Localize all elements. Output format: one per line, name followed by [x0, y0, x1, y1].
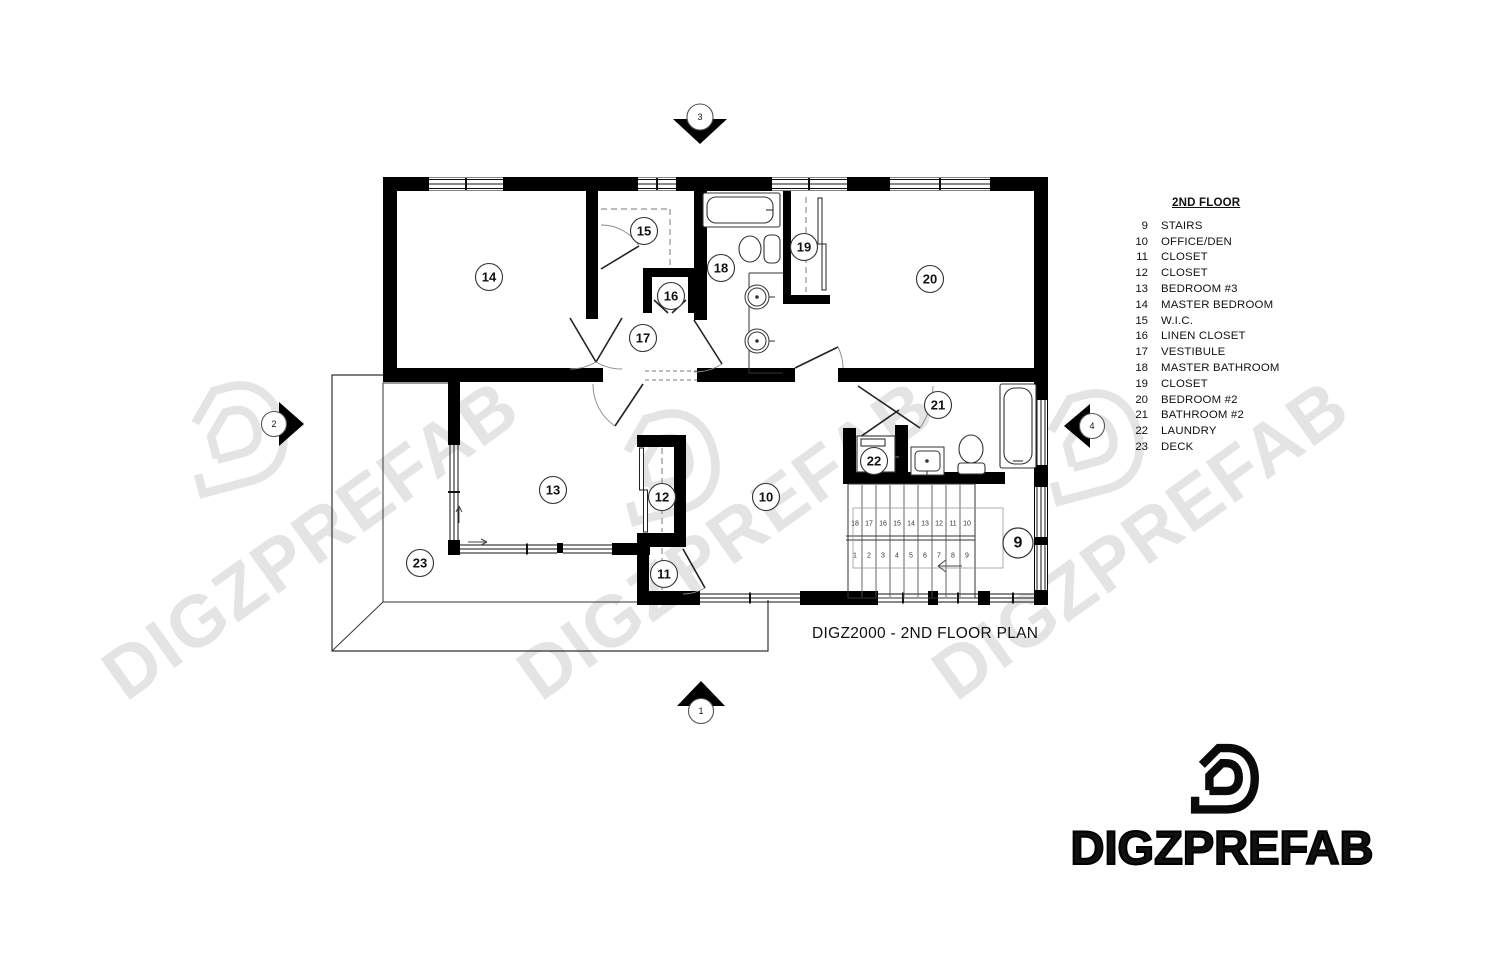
wall-segment: [1034, 177, 1048, 382]
door-swing-arc: [596, 362, 622, 369]
room-number: 12: [655, 490, 669, 505]
tread-number: 10: [963, 521, 971, 528]
legend-item-label: BATHROOM #2: [1161, 409, 1244, 421]
wall-segment: [838, 368, 1048, 382]
stair-landing-break: [846, 536, 975, 540]
room-label-21: 21: [925, 392, 952, 419]
legend-item-label: CLOSET: [1161, 251, 1208, 263]
door-leaf: [795, 347, 838, 368]
window: [563, 545, 612, 553]
wall-segment: [674, 447, 686, 533]
section-marker-number: 3: [697, 112, 702, 122]
window: [429, 178, 503, 191]
window: [1035, 487, 1047, 537]
room-number: 16: [664, 289, 678, 304]
stair-walkline-box: [853, 508, 1003, 568]
arrow-right-icon: [468, 539, 487, 545]
legend-item-label: W.I.C.: [1161, 315, 1193, 327]
room-label-16: 16: [658, 283, 685, 310]
toilet: [739, 235, 780, 263]
double-sink-vanity: [745, 273, 783, 373]
legend-item-label: LAUNDRY: [1161, 425, 1217, 437]
legend-item-number: 19: [1128, 378, 1148, 390]
stair-outline: [848, 484, 975, 598]
legend-item: 22LAUNDRY: [1128, 423, 1368, 439]
patio-slider: [700, 593, 800, 604]
room-label-10: 10: [753, 484, 780, 511]
room-number: 22: [867, 454, 881, 469]
door-swing-arc: [838, 347, 843, 368]
legend-item: 20BEDROOM #2: [1128, 392, 1368, 408]
room-number: 13: [546, 483, 560, 498]
wall-segment: [448, 382, 460, 445]
room-label-19: 19: [791, 234, 818, 261]
drawing-title: DIGZ2000 - 2ND FLOOR PLAN: [812, 625, 1038, 643]
legend-item: 23DECK: [1128, 439, 1368, 455]
legend-item: 14MASTER BEDROOM: [1128, 297, 1368, 313]
window: [638, 178, 676, 191]
legend-item: 11CLOSET: [1128, 250, 1368, 266]
legend-item-number: 14: [1128, 299, 1148, 311]
legend-item-label: LINEN CLOSET: [1161, 330, 1246, 342]
legend-item-number: 20: [1128, 394, 1148, 406]
tread-number: 2: [867, 553, 871, 560]
window: [1035, 545, 1047, 590]
tread-number: 14: [907, 521, 915, 528]
door-swing-arc: [593, 384, 615, 426]
legend-item-number: 22: [1128, 425, 1148, 437]
room-label-23: 23: [407, 550, 434, 577]
legend-item: 16LINEN CLOSET: [1128, 329, 1368, 345]
tread-number: 7: [937, 553, 941, 560]
wall-segment: [783, 191, 791, 303]
legend-item-label: CLOSET: [1161, 378, 1208, 390]
window: [460, 544, 557, 555]
room-number: 18: [714, 261, 728, 276]
tread-number: 13: [921, 521, 929, 528]
tread-number: 5: [909, 553, 913, 560]
legend-item-number: 9: [1128, 220, 1148, 232]
legend-item-number: 13: [1128, 283, 1148, 295]
sliding-door-panel: [640, 448, 644, 490]
legend-title: 2ND FLOOR: [1172, 197, 1368, 209]
tread-number: 16: [879, 521, 887, 528]
legend-item-number: 23: [1128, 441, 1148, 453]
wall-segment: [895, 425, 908, 475]
section-marker-number: 4: [1089, 421, 1094, 431]
cased-opening-dashed: [645, 371, 697, 380]
legend-item-number: 15: [1128, 315, 1148, 327]
legend-item-label: MASTER BATHROOM: [1161, 362, 1280, 374]
section-marker-bottom: 1: [677, 681, 725, 724]
sink: [911, 447, 944, 476]
door-leaf: [694, 320, 722, 364]
window: [772, 178, 847, 191]
legend-item-number: 11: [1128, 251, 1148, 263]
stair-tread-numbers-lower: 1 2 3 4 5 6 7 8 9: [853, 553, 969, 560]
bathtub: [1000, 384, 1036, 468]
wall-segment: [643, 277, 652, 313]
legend-item: 9STAIRS: [1128, 218, 1368, 234]
door-leaf: [570, 318, 596, 362]
wall-segment: [1037, 591, 1048, 605]
door-swing-arc: [570, 362, 596, 369]
room-label-15: 15: [631, 218, 658, 245]
tread-number: 6: [923, 553, 927, 560]
tread-number: 9: [965, 553, 969, 560]
legend-item-number: 10: [1128, 236, 1148, 248]
wall-segment: [697, 368, 795, 382]
stair-tread-numbers-upper: 18 17 16 15 14 13 12 11 10: [851, 521, 971, 528]
room-label-13: 13: [540, 477, 567, 504]
tread-number: 8: [951, 553, 955, 560]
wall-segment: [843, 428, 856, 472]
legend-item: 18MASTER BATHROOM: [1128, 360, 1368, 376]
room-number: 9: [1014, 535, 1023, 552]
legend-item-number: 18: [1128, 362, 1148, 374]
tread-number: 17: [865, 521, 873, 528]
tread-number: 12: [935, 521, 943, 528]
door-leaf: [601, 246, 639, 269]
wall-segment: [586, 191, 598, 319]
window: [990, 593, 1037, 604]
wall-segment: [637, 533, 686, 547]
legend-item: 19CLOSET: [1128, 376, 1368, 392]
room-label-14: 14: [476, 264, 503, 291]
legend-item: 12CLOSET: [1128, 265, 1368, 281]
room-number: 15: [637, 224, 651, 239]
sliding-door-panel: [822, 244, 826, 290]
legend-item-number: 12: [1128, 267, 1148, 279]
wall-segment: [978, 591, 990, 605]
room-number: 14: [482, 270, 497, 285]
tread-number: 11: [949, 521, 956, 528]
tread-number: 1: [853, 553, 857, 560]
bathtub: [703, 193, 780, 227]
legend: 2ND FLOOR 9STAIRS 10OFFICE/DEN 11CLOSET …: [1128, 197, 1368, 455]
deck-corner-miter: [332, 602, 383, 651]
room-number: 19: [797, 240, 811, 255]
section-marker-number: 1: [698, 706, 703, 716]
legend-item-label: VESTIBULE: [1161, 346, 1225, 358]
room-label-20: 20: [917, 266, 944, 293]
room-label-9: 9: [1003, 528, 1033, 558]
wall-segment: [637, 547, 649, 591]
legend-item-number: 21: [1128, 409, 1148, 421]
legend-item: 13BEDROOM #3: [1128, 281, 1368, 297]
section-marker-top: 3: [673, 104, 727, 144]
watermark-text: DIGZPREFAB: [88, 364, 534, 715]
stair-treads: [862, 485, 960, 597]
legend-item: 17VESTIBULE: [1128, 344, 1368, 360]
legend-item-number: 17: [1128, 346, 1148, 358]
legend-item-label: OFFICE/DEN: [1161, 236, 1232, 248]
room-label-22: 22: [861, 448, 888, 475]
legend-item-label: DECK: [1161, 441, 1193, 453]
company-logo-icon: [1195, 748, 1255, 809]
section-marker-left: 2: [262, 402, 305, 446]
room-number: 21: [931, 398, 945, 413]
drawing-sheet: DIGZPREFAB DIGZPREFAB DIGZPREFAB: [0, 0, 1500, 971]
legend-item-label: BEDROOM #2: [1161, 394, 1238, 406]
room-number: 20: [923, 272, 937, 287]
tread-number: 4: [895, 553, 899, 560]
door-leaf: [596, 318, 622, 362]
room-number: 17: [636, 331, 650, 346]
wall-segment: [643, 268, 697, 277]
room-label-18: 18: [708, 255, 735, 282]
room-number: 23: [413, 556, 427, 571]
room-label-17: 17: [630, 325, 657, 352]
room-number: 10: [759, 490, 773, 505]
legend-rows: 9STAIRS 10OFFICE/DEN 11CLOSET 12CLOSET 1…: [1128, 218, 1368, 455]
stairs: 18 17 16 15 14 13 12 11 10 1 2 3 4 5 6 7…: [846, 484, 1003, 598]
room-label-11: 11: [651, 561, 678, 588]
legend-item-label: CLOSET: [1161, 267, 1208, 279]
legend-item-number: 16: [1128, 330, 1148, 342]
annotation-arrows: [456, 506, 487, 545]
legend-item-label: STAIRS: [1161, 220, 1203, 232]
legend-item: 21BATHROOM #2: [1128, 408, 1368, 424]
door-leaf: [615, 384, 643, 426]
wall-segment: [783, 295, 830, 304]
legend-item: 15W.I.C.: [1128, 313, 1368, 329]
window: [1035, 400, 1047, 465]
wall-segment: [383, 368, 603, 382]
room-label-12: 12: [649, 484, 676, 511]
wall-segment: [557, 543, 563, 553]
legend-item: 10OFFICE/DEN: [1128, 234, 1368, 250]
section-marker-number: 2: [271, 419, 276, 429]
wall-segment: [383, 177, 397, 382]
wall-segment: [448, 540, 460, 555]
tread-number: 18: [851, 521, 859, 528]
wall-segment: [688, 277, 697, 313]
sliding-door-panel: [818, 198, 822, 244]
room-number: 11: [657, 567, 671, 582]
sliding-door-panel: [644, 490, 648, 532]
tread-number: 15: [893, 521, 901, 528]
arrow-up-icon: [456, 506, 462, 523]
stair-direction-arrow: [938, 560, 962, 572]
window: [890, 178, 990, 191]
toilet: [958, 435, 985, 474]
window: [448, 445, 460, 540]
wall-segment: [637, 435, 686, 447]
legend-item-label: BEDROOM #3: [1161, 283, 1238, 295]
tread-number: 3: [881, 553, 885, 560]
legend-item-label: MASTER BEDROOM: [1161, 299, 1273, 311]
company-logo-wordmark: DIGZPREFAB: [1048, 820, 1396, 875]
